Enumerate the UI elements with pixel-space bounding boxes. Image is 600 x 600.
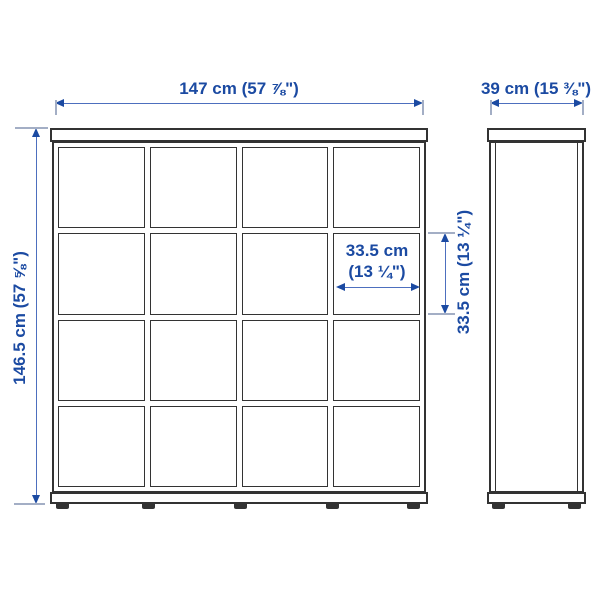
cube-width-label-line2: (13 ¼") bbox=[348, 262, 405, 282]
extension-tick bbox=[55, 100, 57, 115]
cube-height-label: 33.5 cm (13 ¼") bbox=[454, 210, 474, 334]
side-top-panel bbox=[487, 128, 586, 142]
dimension-line bbox=[339, 287, 417, 288]
arrowhead-up-icon bbox=[32, 128, 40, 137]
extension-tick bbox=[428, 313, 455, 315]
extension-tick bbox=[582, 100, 584, 115]
cube-cell bbox=[333, 147, 420, 228]
front-foot bbox=[326, 504, 339, 509]
cube-cell bbox=[150, 147, 237, 228]
front-body-frame bbox=[52, 141, 426, 493]
arrowhead-up-icon bbox=[441, 233, 449, 242]
cube-cell bbox=[58, 406, 145, 487]
extension-tick bbox=[422, 100, 424, 115]
side-inner-walls bbox=[495, 143, 578, 491]
side-body-frame bbox=[489, 141, 584, 493]
front-top-panel bbox=[50, 128, 428, 142]
front-foot bbox=[234, 504, 247, 509]
cube-cell bbox=[333, 320, 420, 401]
extension-tick bbox=[15, 127, 48, 129]
cube-cell bbox=[242, 147, 329, 228]
cube-cell bbox=[242, 406, 329, 487]
dimension-line bbox=[58, 103, 420, 104]
cube-cell bbox=[150, 320, 237, 401]
arrowhead-left-icon bbox=[336, 283, 345, 291]
cube-cell bbox=[333, 406, 420, 487]
side-foot bbox=[568, 504, 581, 509]
front-width-label: 147 cm (57 ⅞") bbox=[179, 79, 299, 99]
front-foot bbox=[142, 504, 155, 509]
dimension-line bbox=[493, 103, 580, 104]
dimension-line bbox=[36, 133, 37, 499]
front-height-label: 146.5 cm (57 ⅝") bbox=[10, 251, 30, 385]
side-depth-label: 39 cm (15 ⅜") bbox=[481, 79, 591, 99]
front-foot bbox=[56, 504, 69, 509]
cube-cell bbox=[58, 320, 145, 401]
side-base-panel bbox=[487, 492, 586, 504]
front-base-panel bbox=[50, 492, 428, 504]
cube-cell bbox=[242, 320, 329, 401]
shelf-dimension-diagram: 147 cm (57 ⅞") 39 cm (15 ⅜") 146.5 cm (5… bbox=[0, 0, 600, 600]
front-grid bbox=[58, 147, 420, 487]
cube-width-label-line1: 33.5 cm bbox=[346, 241, 408, 261]
cube-cell bbox=[150, 406, 237, 487]
cube-cell bbox=[58, 147, 145, 228]
extension-tick bbox=[490, 100, 492, 115]
arrowhead-right-icon bbox=[411, 283, 420, 291]
cube-cell bbox=[150, 233, 237, 314]
extension-tick bbox=[428, 232, 455, 234]
side-foot bbox=[492, 504, 505, 509]
extension-tick bbox=[14, 503, 45, 505]
cube-cell bbox=[242, 233, 329, 314]
front-foot bbox=[407, 504, 420, 509]
dimension-line bbox=[445, 237, 446, 309]
cube-cell bbox=[58, 233, 145, 314]
